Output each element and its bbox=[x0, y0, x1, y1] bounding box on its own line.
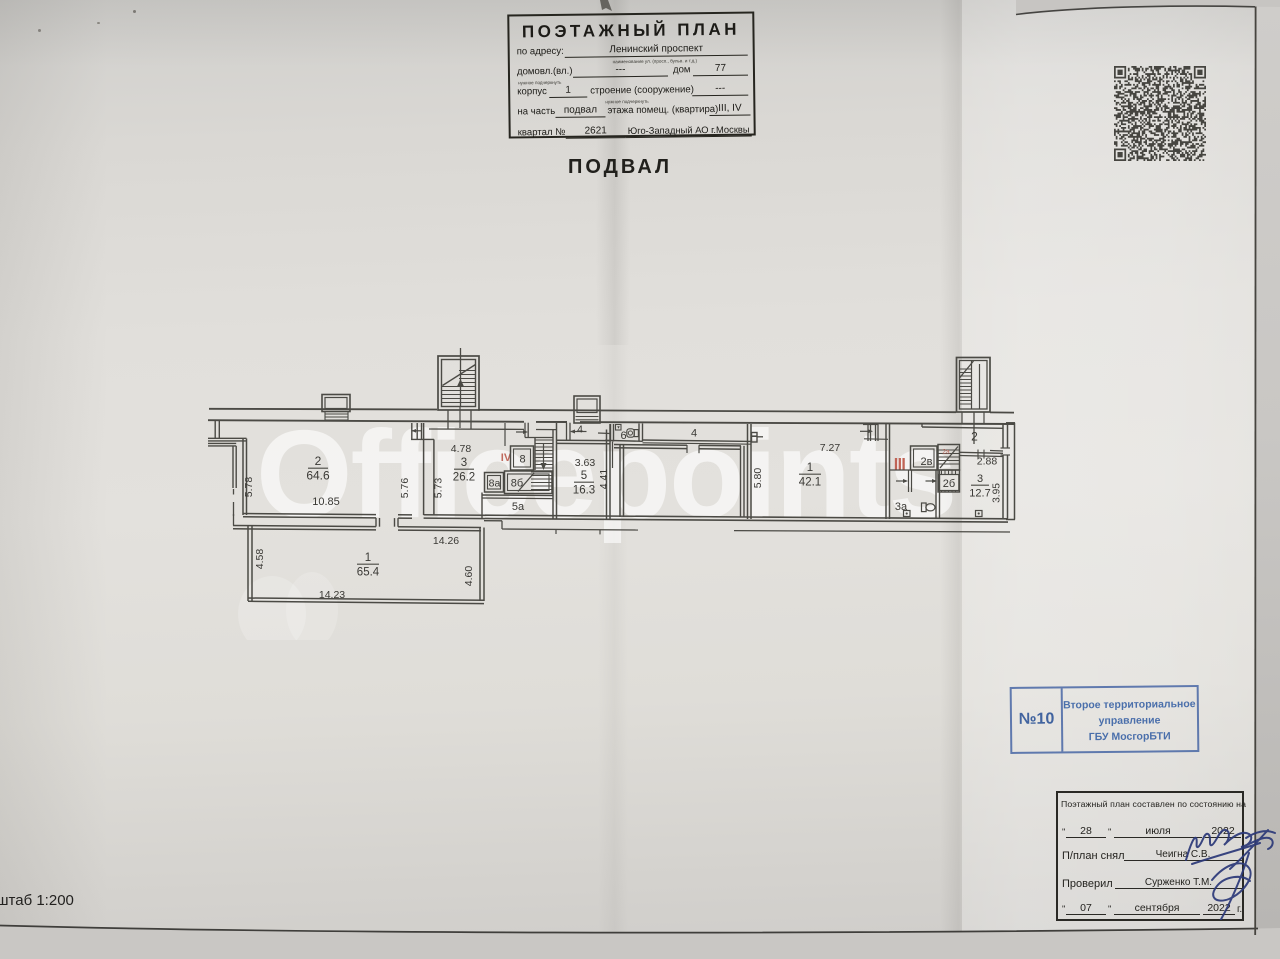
svg-text:2.88: 2.88 bbox=[977, 456, 998, 468]
svg-text:4.58: 4.58 bbox=[254, 549, 266, 570]
svg-text:1: 1 bbox=[807, 462, 813, 474]
svg-text:5а: 5а bbox=[512, 501, 525, 513]
svg-text:1: 1 bbox=[365, 552, 371, 564]
svg-text:2: 2 bbox=[315, 454, 322, 468]
svg-text:2в: 2в bbox=[921, 456, 933, 468]
svg-text:7.27: 7.27 bbox=[820, 442, 841, 454]
svg-text:4.78: 4.78 bbox=[451, 443, 472, 455]
svg-text:4.41: 4.41 bbox=[598, 469, 610, 490]
svg-text:3: 3 bbox=[461, 457, 467, 469]
svg-text:26.2: 26.2 bbox=[453, 472, 475, 484]
svg-text:65.4: 65.4 bbox=[357, 567, 380, 579]
svg-text:4.60: 4.60 bbox=[463, 566, 475, 587]
svg-text:12.7: 12.7 bbox=[969, 488, 990, 500]
svg-text:4: 4 bbox=[577, 424, 583, 436]
svg-text:5: 5 bbox=[581, 470, 587, 482]
svg-text:8а: 8а bbox=[489, 478, 501, 490]
svg-text:2а: 2а bbox=[942, 449, 950, 456]
svg-text:2б: 2б bbox=[943, 478, 955, 490]
svg-text:5.76: 5.76 bbox=[399, 478, 411, 499]
svg-text:5.73: 5.73 bbox=[433, 478, 445, 499]
svg-text:5.78: 5.78 bbox=[243, 477, 255, 498]
svg-text:16.3: 16.3 bbox=[573, 485, 595, 497]
svg-text:10.85: 10.85 bbox=[312, 496, 340, 508]
svg-text:3а: 3а bbox=[895, 501, 908, 513]
svg-text:6: 6 bbox=[620, 430, 626, 442]
svg-text:42.1: 42.1 bbox=[799, 477, 821, 489]
svg-text:3: 3 bbox=[977, 473, 983, 485]
svg-text:4: 4 bbox=[691, 428, 697, 440]
svg-text:2: 2 bbox=[971, 430, 978, 444]
svg-text:64.6: 64.6 bbox=[306, 469, 330, 483]
svg-text:8: 8 bbox=[519, 454, 525, 466]
svg-text:14.26: 14.26 bbox=[433, 535, 459, 547]
svg-text:5.80: 5.80 bbox=[752, 468, 764, 489]
svg-text:3.95: 3.95 bbox=[992, 483, 1003, 503]
svg-text:14.23: 14.23 bbox=[319, 589, 345, 601]
svg-text:3.63: 3.63 bbox=[575, 457, 596, 469]
